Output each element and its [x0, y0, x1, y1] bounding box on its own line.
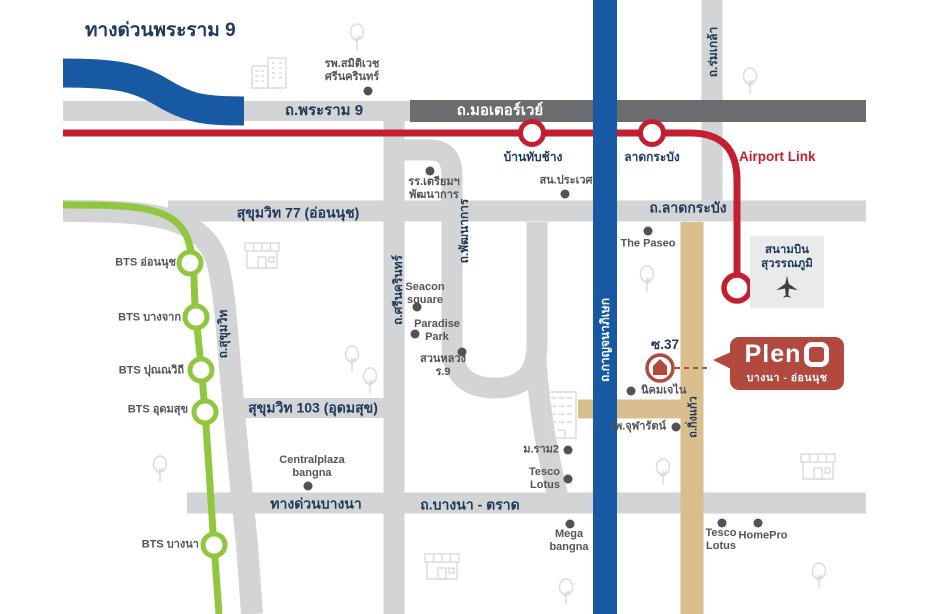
poi-dot-centralplaza-bangna [304, 482, 313, 491]
tree-icon [641, 266, 654, 292]
tree-icon [560, 579, 573, 605]
bts-onnut-marker [179, 252, 201, 274]
road-label-ladkrabang: ถ.ลาดกระบัง [649, 200, 726, 217]
poi-label-nikhom: นิคมเจไน [641, 385, 686, 398]
bts-label-onnut: BTS อ่อนนุช [115, 257, 176, 270]
poi-dot-tesco-lotus-north [564, 475, 573, 484]
tree-icon [351, 24, 364, 50]
road-label-sukhumvit: ถ.สุขุมวิท [216, 310, 230, 359]
brand-o-icon [804, 342, 829, 367]
building-icon [252, 58, 286, 88]
road-label-srinakarin: ถ.ศรีนครินทร์ [391, 255, 405, 325]
bts-label-bangna: BTS บางนา [142, 539, 199, 552]
poi-label-tesco-lotus-north: Tesco Lotus [529, 466, 560, 492]
plane-icon [774, 274, 800, 300]
poi-label-triam-pattanakarn: รร.เตรียมฯ พัฒนาการ [408, 176, 460, 202]
poi-label-m-ram2: ม.ราม2 [523, 444, 559, 457]
poi-label-seacon-square: Seacon square [405, 281, 444, 307]
poi-dot-suan-luang-r9 [458, 348, 467, 357]
location-map: ทางด่วนพระราม 9 ถ.พระราม 9 ถ.มอเตอร์เวย์… [0, 0, 943, 614]
tree-icon [364, 368, 377, 394]
poi-dot-chularat [672, 423, 681, 432]
airport-link-label: Airport Link [739, 149, 816, 165]
shop-icon [801, 454, 835, 479]
poi-dot-paradise-park [411, 330, 420, 339]
station-banthapchang-marker [521, 122, 544, 145]
road-label-bangna-trad: ถ.บางนา - ตราด [420, 497, 519, 514]
poi-label-the-paseo: The Paseo [620, 238, 675, 251]
poi-label-samitivej: รพ.สมิติเวช ศรีนครินทร์ [325, 58, 380, 84]
poi-dot-san-prawet [561, 190, 570, 199]
airport-box: สนามบิน สุวรรณภูมิ [750, 236, 824, 308]
tree-icon [154, 456, 167, 482]
poi-label-san-prawet: สน.ประเวศ [539, 175, 592, 188]
project-brand: Plen [745, 342, 830, 367]
poi-dot-nikhom [627, 387, 636, 396]
bts-udomsuk-marker [194, 401, 216, 423]
tree-icon [657, 459, 670, 485]
poi-label-suan-luang-r9: สวนหลวง ร.9 [420, 353, 466, 379]
soi-37-label: ซ.37 [651, 337, 679, 353]
road-label-motorway: ถ.มอเตอร์เวย์ [457, 102, 543, 120]
airport-name: สนามบิน สุวรรณภูมิ [761, 244, 813, 272]
poi-dot-m-ram2 [564, 446, 573, 455]
poi-dot-the-paseo [644, 227, 653, 236]
road-label-kingkaew: ถ.กิ่งแก้ว [688, 396, 701, 438]
station-label-banthapchang: บ้านทับช้าง [504, 150, 563, 164]
tree-icon [744, 68, 757, 94]
road-label-sukhumvit103: สุขุมวิท 103 (อุดมสุข) [248, 400, 378, 417]
logo-tail [713, 352, 731, 369]
poi-dot-samitivej [364, 87, 373, 96]
poi-label-homepro: HomePro [739, 530, 788, 543]
bts-label-bangchak: BTS บางจาก [118, 312, 181, 325]
road-label-bangna-expressway: ทางด่วนบางนา [270, 496, 361, 513]
poi-label-centralplaza-bangna: Centralplaza bangna [279, 454, 344, 480]
poi-label-mega-bangna: Mega bangna [549, 528, 588, 554]
road-label-romklao: ถ.ร่มเกล้า [706, 27, 720, 77]
project-subtitle: บางนา - อ่อนนุช [747, 369, 828, 386]
bts-punnawithi-marker [190, 359, 212, 381]
station-label-ladkrabang: ลาดกระบัง [624, 150, 680, 164]
shop-icon [425, 554, 459, 579]
tree-icon [813, 563, 826, 589]
station-airport-terminus-marker [724, 275, 750, 301]
poi-dot-tesco-lotus-south [718, 519, 727, 528]
poi-dot-mega-bangna [566, 520, 575, 529]
poi-dot-seacon-square [413, 303, 422, 312]
map-title: ทางด่วนพระราม 9 [85, 20, 236, 42]
shop-icon [245, 243, 279, 268]
road-label-pattanakarn: ถ.พัฒนาการ [457, 199, 471, 264]
bts-label-punnawithi: BTS ปุณณวิถี [119, 365, 184, 378]
bts-bangchak-marker [185, 306, 207, 328]
poi-label-paradise-park: Paradise Park [414, 318, 460, 344]
poi-label-tesco-lotus-south: Tesco Lotus [706, 527, 737, 553]
poi-dot-homepro [754, 519, 763, 528]
bts-label-udomsuk: BTS อุดมสุข [128, 404, 188, 417]
road-label-kanchanaphisek: ถ.กาญจนาภิเษก [598, 298, 612, 382]
tree-icon [346, 346, 359, 372]
road-label-rama9: ถ.พระราม 9 [285, 102, 363, 120]
brand-text: Plen [745, 342, 802, 367]
blue-roads [63, 0, 605, 614]
poi-dot-triam-pattanakarn [426, 167, 435, 176]
station-ladkrabang-marker [641, 122, 664, 145]
project-logo: Plen บางนา - อ่อนนุช [730, 337, 844, 390]
bts-bangna-marker [203, 534, 225, 556]
poi-label-chularat: รพ.จุฬารัตน์ [609, 421, 666, 434]
road-label-sukhumvit77: สุขุมวิท 77 (อ่อนนุช) [237, 205, 360, 222]
